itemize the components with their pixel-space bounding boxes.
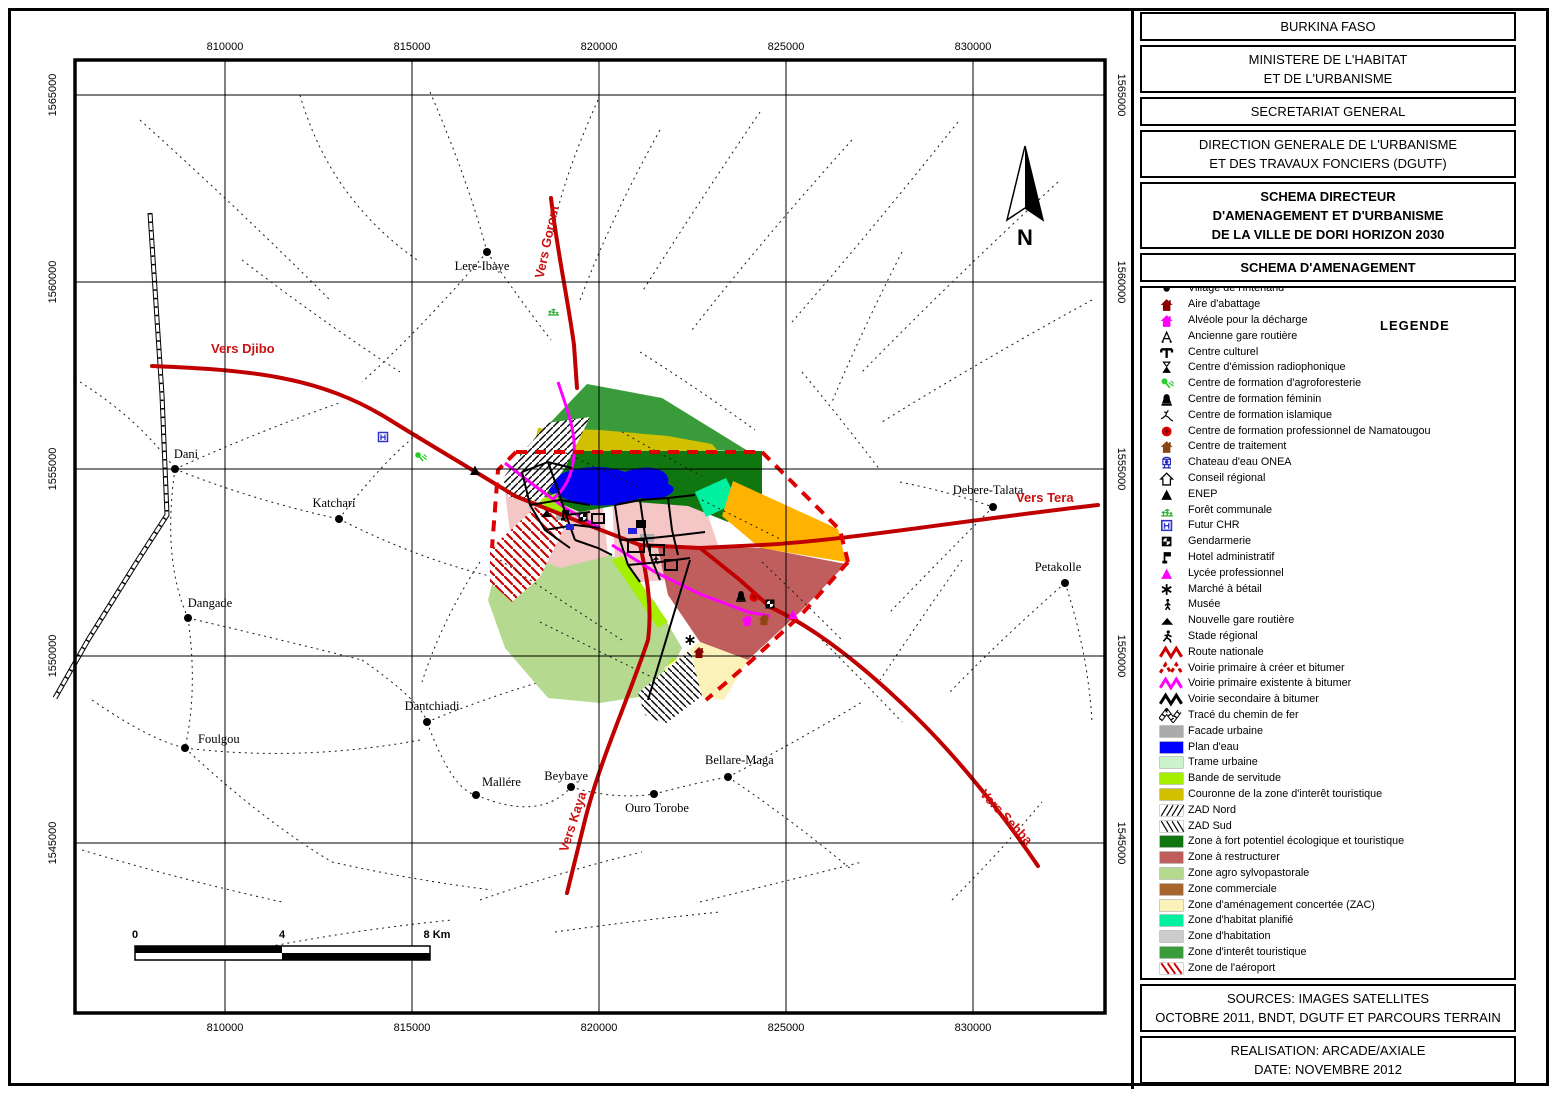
red-circle-icon xyxy=(749,592,758,601)
y-tick-right: 1545000 xyxy=(1115,822,1127,865)
header-box-0: BURKINA FASO xyxy=(1140,12,1516,41)
y-tick-right: 1565000 xyxy=(1115,74,1127,117)
scale-bar: 0 4 8 Km xyxy=(132,929,451,960)
north-arrow-icon: N xyxy=(1007,146,1043,250)
triangle-icon xyxy=(1156,566,1188,581)
village-dot-icon xyxy=(650,790,658,798)
scale-zero: 0 xyxy=(132,929,138,941)
railway-icon xyxy=(1156,708,1188,723)
x-tick-top: 820000 xyxy=(581,41,618,53)
x-tick-bottom: 820000 xyxy=(581,1022,618,1034)
village-label: Katchari xyxy=(312,496,356,510)
house-icon xyxy=(1156,297,1188,312)
header-box-4-line: D'AMENAGEMENT ET D'URBANISME xyxy=(1146,206,1510,225)
village-label: Ouro Torobe xyxy=(625,801,689,815)
map-sheet: N 0 4 8 Km 81000081000081500081500082000… xyxy=(0,0,1563,1098)
y-tick-right: 1560000 xyxy=(1115,261,1127,304)
panel-footer-boxes: SOURCES: IMAGES SATELLITESOCTOBRE 2011, … xyxy=(1140,984,1516,1084)
runner-icon xyxy=(1156,629,1188,644)
village-label: Bellare-Maga xyxy=(705,753,774,767)
zone-swatch-icon xyxy=(1156,929,1188,944)
house-icon xyxy=(1156,313,1188,328)
zigzag-icon xyxy=(1156,645,1188,660)
scale-mid: 4 xyxy=(279,929,286,941)
flat-triangle-icon xyxy=(1156,613,1188,628)
boxed-h-icon xyxy=(1156,518,1188,533)
house-icon xyxy=(1156,439,1188,454)
header-box-4: SCHEMA DIRECTEURD'AMENAGEMENT ET D'URBAN… xyxy=(1140,182,1516,249)
header-box-1-line: ET DE L'URBANISME xyxy=(1146,69,1510,88)
old-station-icon xyxy=(1156,329,1188,344)
y-tick-left: 1555000 xyxy=(47,448,59,491)
x-tick-bottom: 825000 xyxy=(768,1022,805,1034)
legend-item-label: Zone de promotion immobilière xyxy=(1188,975,1337,980)
forest-icon xyxy=(1156,503,1188,518)
sources-box: SOURCES: IMAGES SATELLITESOCTOBRE 2011, … xyxy=(1140,984,1516,1032)
village-dot-icon xyxy=(184,614,192,622)
islamic-figure-icon xyxy=(1156,408,1188,423)
zigzag-icon xyxy=(1156,676,1188,691)
header-box-2-line: SECRETARIAT GENERAL xyxy=(1146,102,1510,121)
village-dot-icon xyxy=(171,465,179,473)
boxed-h-icon xyxy=(379,433,388,442)
header-box-5: SCHEMA D'AMENAGEMENT xyxy=(1140,253,1516,282)
y-tick-left: 1550000 xyxy=(47,635,59,678)
village-label: Debere-Talata xyxy=(953,483,1024,497)
agroforestry-icon xyxy=(415,452,426,461)
red-circle-icon xyxy=(1156,424,1188,439)
header-box-3: DIRECTION GENERALE DE L'URBANISMEET DES … xyxy=(1140,130,1516,178)
legend-item: Zone de promotion immobilière xyxy=(1156,976,1514,980)
x-tick-bottom: 830000 xyxy=(955,1022,992,1034)
house-outline-icon xyxy=(1156,471,1188,486)
legend-box: LEGENDE Village de l'interlandAire d'aba… xyxy=(1140,286,1516,980)
hatch-bwd xyxy=(1156,819,1188,834)
y-tick-left: 1560000 xyxy=(47,261,59,304)
sources-box-line: SOURCES: IMAGES SATELLITES xyxy=(1146,989,1510,1008)
x-tick-bottom: 810000 xyxy=(207,1022,244,1034)
y-tick-left: 1565000 xyxy=(47,74,59,117)
header-box-4-line: SCHEMA DIRECTEUR xyxy=(1146,187,1510,206)
village-dot-icon xyxy=(335,515,343,523)
header-box-4-line: DE LA VILLE DE DORI HORIZON 2030 xyxy=(1146,225,1510,244)
realisation-box-line: DATE: NOVEMBRE 2012 xyxy=(1146,1060,1510,1079)
zone-swatch-icon xyxy=(1156,771,1188,786)
bell-icon xyxy=(1156,392,1188,407)
zone-a-restructurer xyxy=(658,548,846,660)
x-tick-top: 830000 xyxy=(955,41,992,53)
village-dot-icon xyxy=(989,503,997,511)
village-dot-icon xyxy=(181,744,189,752)
museum-icon xyxy=(1156,597,1188,612)
triangle-icon xyxy=(1156,487,1188,502)
forest-icon xyxy=(548,309,559,315)
agroforestry-icon xyxy=(1156,376,1188,391)
map-canvas: N 0 4 8 Km 81000081000081500081500082000… xyxy=(0,0,1135,1098)
road-label: Vers Tera xyxy=(1016,490,1074,505)
village-dot-icon xyxy=(1061,579,1069,587)
village-label: Petakolle xyxy=(1035,560,1082,574)
road-vers-djibo xyxy=(152,366,515,496)
hatch-red xyxy=(1156,961,1188,976)
header-box-1-line: MINISTERE DE L'HABITAT xyxy=(1146,50,1510,69)
zone-swatch-icon xyxy=(1156,913,1188,928)
x-tick-top: 810000 xyxy=(207,41,244,53)
x-tick-top: 815000 xyxy=(394,41,431,53)
y-tick-right: 1555000 xyxy=(1115,448,1127,491)
zone-swatch-icon xyxy=(1156,850,1188,865)
sources-box-line: OCTOBRE 2011, BNDT, DGUTF ET PARCOURS TE… xyxy=(1146,1008,1510,1027)
village-label: Lere-Ibaye xyxy=(455,259,510,273)
header-box-0-line: BURKINA FASO xyxy=(1146,17,1510,36)
railway-line xyxy=(55,213,167,698)
village-dot-icon xyxy=(483,248,491,256)
village-label: Dantchiadi xyxy=(405,699,460,713)
water-tower-icon xyxy=(1156,455,1188,470)
village-dot-icon xyxy=(472,791,480,799)
realisation-box-line: REALISATION: ARCADE/AXIALE xyxy=(1146,1041,1510,1060)
title-legend-panel: BURKINA FASOMINISTERE DE L'HABITATET DE … xyxy=(1140,12,1516,1084)
panel-header-boxes: BURKINA FASOMINISTERE DE L'HABITATET DE … xyxy=(1140,12,1516,282)
zones xyxy=(488,384,846,724)
scale-end: 8 Km xyxy=(424,929,451,941)
zone-swatch-icon xyxy=(1156,898,1188,913)
y-tick-right: 1550000 xyxy=(1115,635,1127,678)
y-tick-left: 1545000 xyxy=(47,822,59,865)
legend-title: LEGENDE xyxy=(1380,316,1450,335)
zone-swatch-icon xyxy=(1156,977,1188,980)
gendarmerie-icon xyxy=(1156,534,1188,549)
gendarmerie-icon xyxy=(766,600,775,609)
road-label: Vers Djibo xyxy=(211,341,275,356)
village-label: Foulgou xyxy=(198,732,240,746)
flag-icon xyxy=(1156,550,1188,565)
header-box-1: MINISTERE DE L'HABITATET DE L'URBANISME xyxy=(1140,45,1516,93)
village-label: Dani xyxy=(174,447,199,461)
asterisk-icon xyxy=(686,635,695,645)
village-dot-icon xyxy=(567,783,575,791)
zone-swatch-icon xyxy=(1156,740,1188,755)
realisation-box: REALISATION: ARCADE/AXIALEDATE: NOVEMBRE… xyxy=(1140,1036,1516,1084)
header-box-3-line: ET DES TRAVAUX FONCIERS (DGUTF) xyxy=(1146,154,1510,173)
north-label: N xyxy=(1017,225,1033,250)
header-box-5-line: SCHEMA D'AMENAGEMENT xyxy=(1146,258,1510,277)
village-dot-icon xyxy=(423,718,431,726)
village-label: Beybaye xyxy=(544,769,588,783)
zone-swatch-icon xyxy=(1156,945,1188,960)
village-label: Dangade xyxy=(188,596,233,610)
hatch-fwd xyxy=(1156,803,1188,818)
village-dot-icon xyxy=(724,773,732,781)
header-box-2: SECRETARIAT GENERAL xyxy=(1140,97,1516,126)
x-tick-bottom: 815000 xyxy=(394,1022,431,1034)
header-box-3-line: DIRECTION GENERALE DE L'URBANISME xyxy=(1146,135,1510,154)
zigzag-icon xyxy=(1156,661,1188,676)
radio-tower-icon xyxy=(1156,360,1188,375)
legend-list: Village de l'interlandAire d'abattageAlv… xyxy=(1156,286,1514,980)
zone-swatch-icon xyxy=(1156,724,1188,739)
road-label: Vers Sebba xyxy=(977,786,1036,848)
x-tick-top: 825000 xyxy=(768,41,805,53)
zigzag-icon xyxy=(1156,692,1188,707)
zone-swatch-icon xyxy=(1156,755,1188,770)
village-label: Mallére xyxy=(482,775,521,789)
cultural-center-icon xyxy=(1156,345,1188,360)
asterisk-icon xyxy=(1156,582,1188,597)
zone-swatch-icon xyxy=(1156,866,1188,881)
gendarmerie-icon xyxy=(579,513,588,522)
zone-swatch-icon xyxy=(1156,787,1188,802)
zone-swatch-icon xyxy=(1156,882,1188,897)
zone-swatch-icon xyxy=(1156,834,1188,849)
village-dot-icon xyxy=(1156,286,1188,296)
